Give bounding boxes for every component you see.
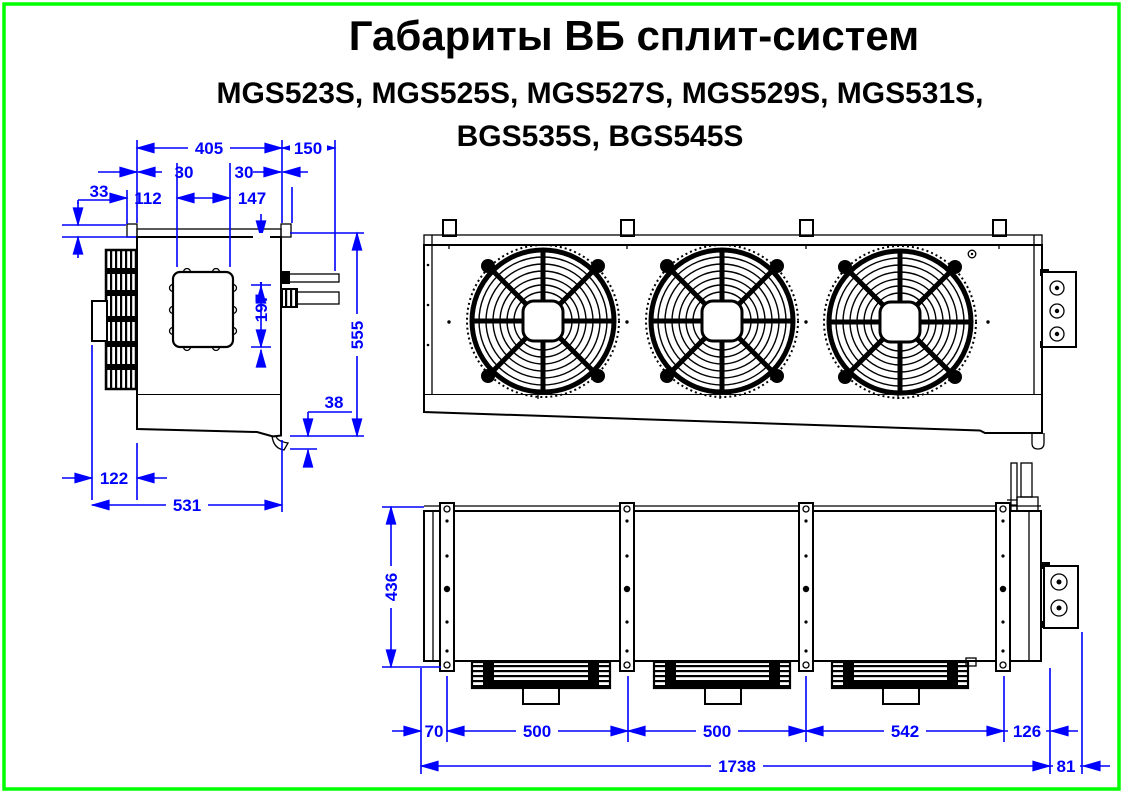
dim-436: 436 — [382, 573, 401, 601]
dim-500-2: 500 — [703, 722, 731, 741]
subtitle-models-line2: BGS535S, BGS545S — [457, 120, 744, 153]
refrigerant-pipes-side — [281, 271, 339, 307]
dim-405: 405 — [195, 139, 223, 158]
dim-197: 197 — [252, 294, 271, 322]
dim-147: 147 — [238, 189, 266, 208]
fan-1 — [467, 245, 619, 397]
mounting-tab — [993, 220, 1006, 236]
dim-542: 542 — [891, 722, 919, 741]
mounting-tab — [800, 220, 813, 236]
drawing-page: Габариты ВБ сплит-систем MGS523S, MGS525… — [0, 0, 1123, 793]
dim-150: 150 — [294, 139, 322, 158]
subtitle-models-line1: MGS523S, MGS525S, MGS527S, MGS529S, MGS5… — [216, 77, 983, 110]
dim-112: 112 — [134, 189, 161, 208]
dim-30-left: 30 — [175, 163, 194, 182]
pipe-bracket-front — [1040, 269, 1076, 348]
dim-70: 70 — [425, 722, 444, 741]
fan-motor-mounts — [472, 658, 976, 704]
mounting-tab — [621, 220, 634, 236]
drain-pan-side — [137, 395, 281, 437]
mounting-brackets-plan — [440, 503, 1010, 671]
dim-500-1: 500 — [523, 722, 551, 741]
side-view — [92, 224, 339, 450]
technical-drawing: Габариты ВБ сплит-систем MGS523S, MGS525… — [0, 0, 1123, 793]
dim-38: 38 — [325, 393, 344, 412]
plan-body — [424, 511, 1041, 661]
drain-outlet — [1032, 433, 1044, 449]
coil-header — [92, 301, 107, 341]
drain-spout — [272, 436, 288, 450]
dim-81: 81 — [1057, 757, 1076, 776]
top-rail — [424, 235, 1042, 245]
refrigerant-pipes-plan — [1007, 463, 1038, 511]
junction-box — [170, 269, 237, 351]
mounting-tab — [443, 220, 456, 236]
page-title: Габариты ВБ сплит-систем — [349, 12, 919, 59]
plan-view — [424, 463, 1078, 704]
dim-122: 122 — [100, 469, 128, 488]
fan-2 — [646, 245, 798, 397]
dim-33: 33 — [90, 182, 109, 201]
dim-531: 531 — [173, 496, 201, 515]
dim-126: 126 — [1013, 722, 1041, 741]
dim-30-right: 30 — [235, 163, 254, 182]
fan-3 — [824, 246, 976, 398]
pipe-bracket-plan — [1041, 562, 1078, 628]
dim-1738: 1738 — [718, 757, 756, 776]
dim-555: 555 — [348, 321, 367, 349]
front-view — [424, 220, 1076, 449]
drain-pan-front — [424, 395, 1042, 433]
